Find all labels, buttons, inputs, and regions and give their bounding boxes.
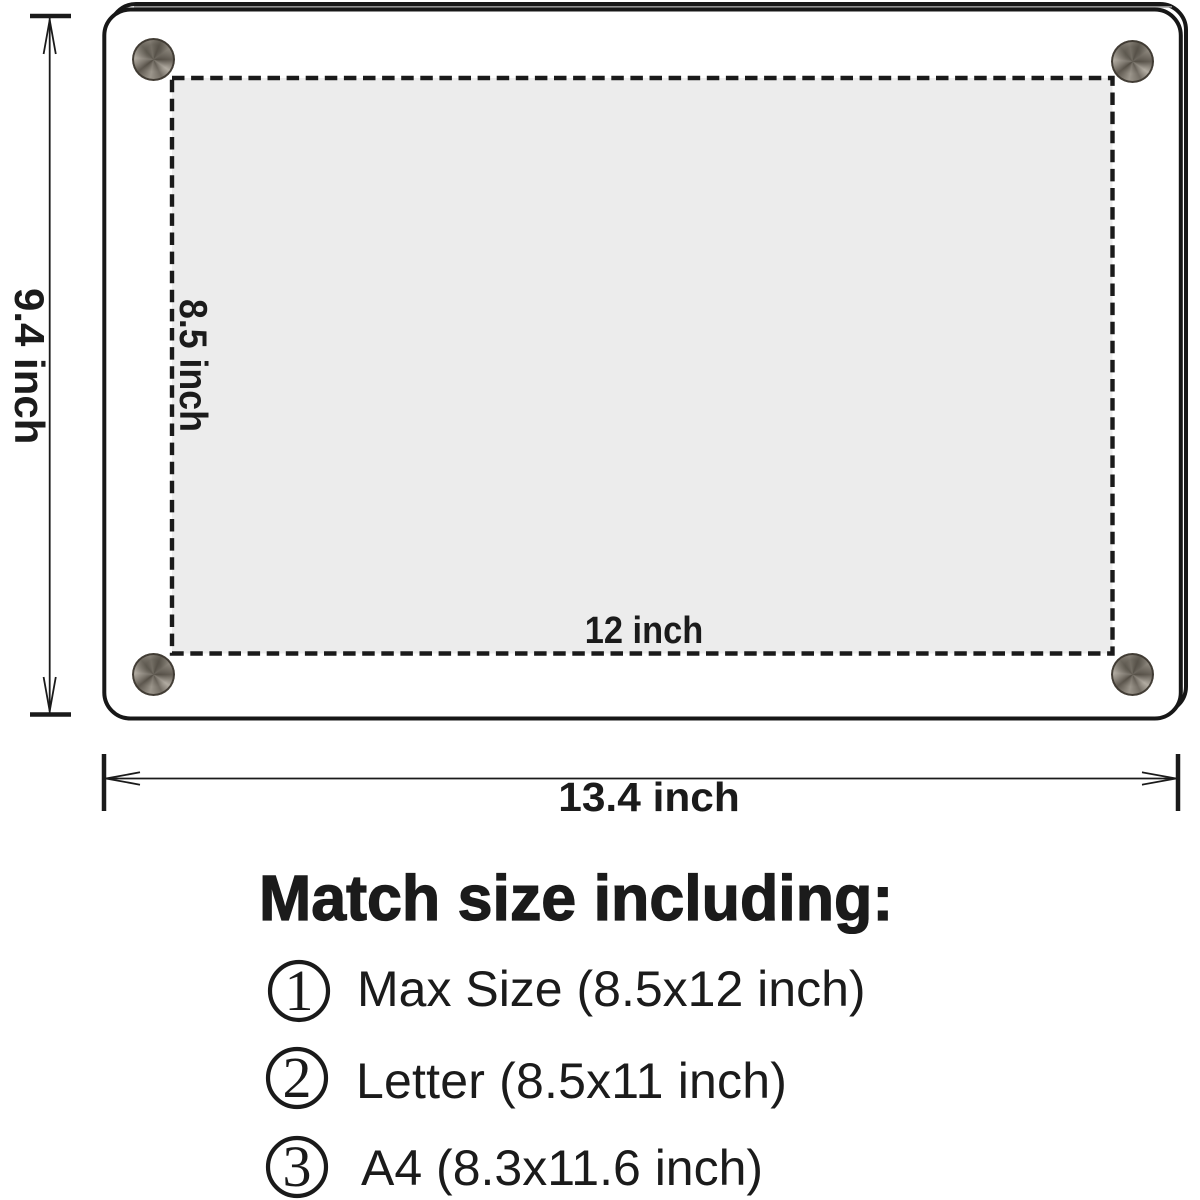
svg-text:1: 1 [285, 958, 314, 1023]
svg-text:2: 2 [283, 1045, 312, 1110]
svg-text:3: 3 [283, 1134, 312, 1199]
